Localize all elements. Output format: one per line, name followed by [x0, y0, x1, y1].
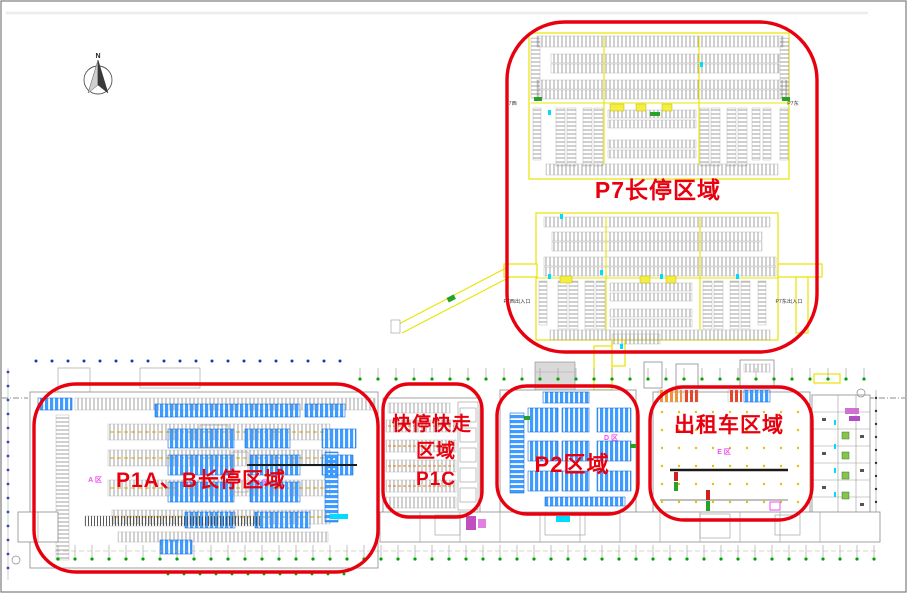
zone-p7-label: P7长停区域: [595, 177, 721, 203]
p7-upper-parking-block: [529, 33, 790, 179]
area-e-label: E 区: [717, 448, 731, 456]
p7-east-label: P7东: [787, 99, 799, 107]
area-d-label: D 区: [604, 434, 618, 442]
zone-p1c-label-line2: 区域: [416, 439, 456, 462]
area-b-vertical-stalls: [325, 452, 338, 522]
compass-n-label: N: [95, 53, 100, 60]
parking-map-page: { "colors": { "annotation_red": "#e8000f…: [0, 0, 908, 594]
zone-p2-label: P2区域: [535, 452, 610, 477]
p7-east-entrance-label: P7东出入口: [775, 297, 802, 305]
right-strip-magenta-fixture2: [849, 416, 860, 421]
zone-p1c-label-line1: 快停快走: [392, 412, 472, 435]
area-a-label: A 区: [88, 476, 102, 484]
zone-taxi-label: 出租车区域: [674, 413, 784, 437]
zone-p1ab-label: P1A、B长停区域: [116, 468, 286, 492]
taxi-block: [653, 390, 810, 518]
site-plan-canvas: N: [0, 0, 908, 594]
zone-p1c-label-line3: P1C: [416, 469, 456, 490]
right-strip-magenta-fixture: [845, 408, 859, 414]
p1ab-parking-block: [30, 368, 378, 568]
